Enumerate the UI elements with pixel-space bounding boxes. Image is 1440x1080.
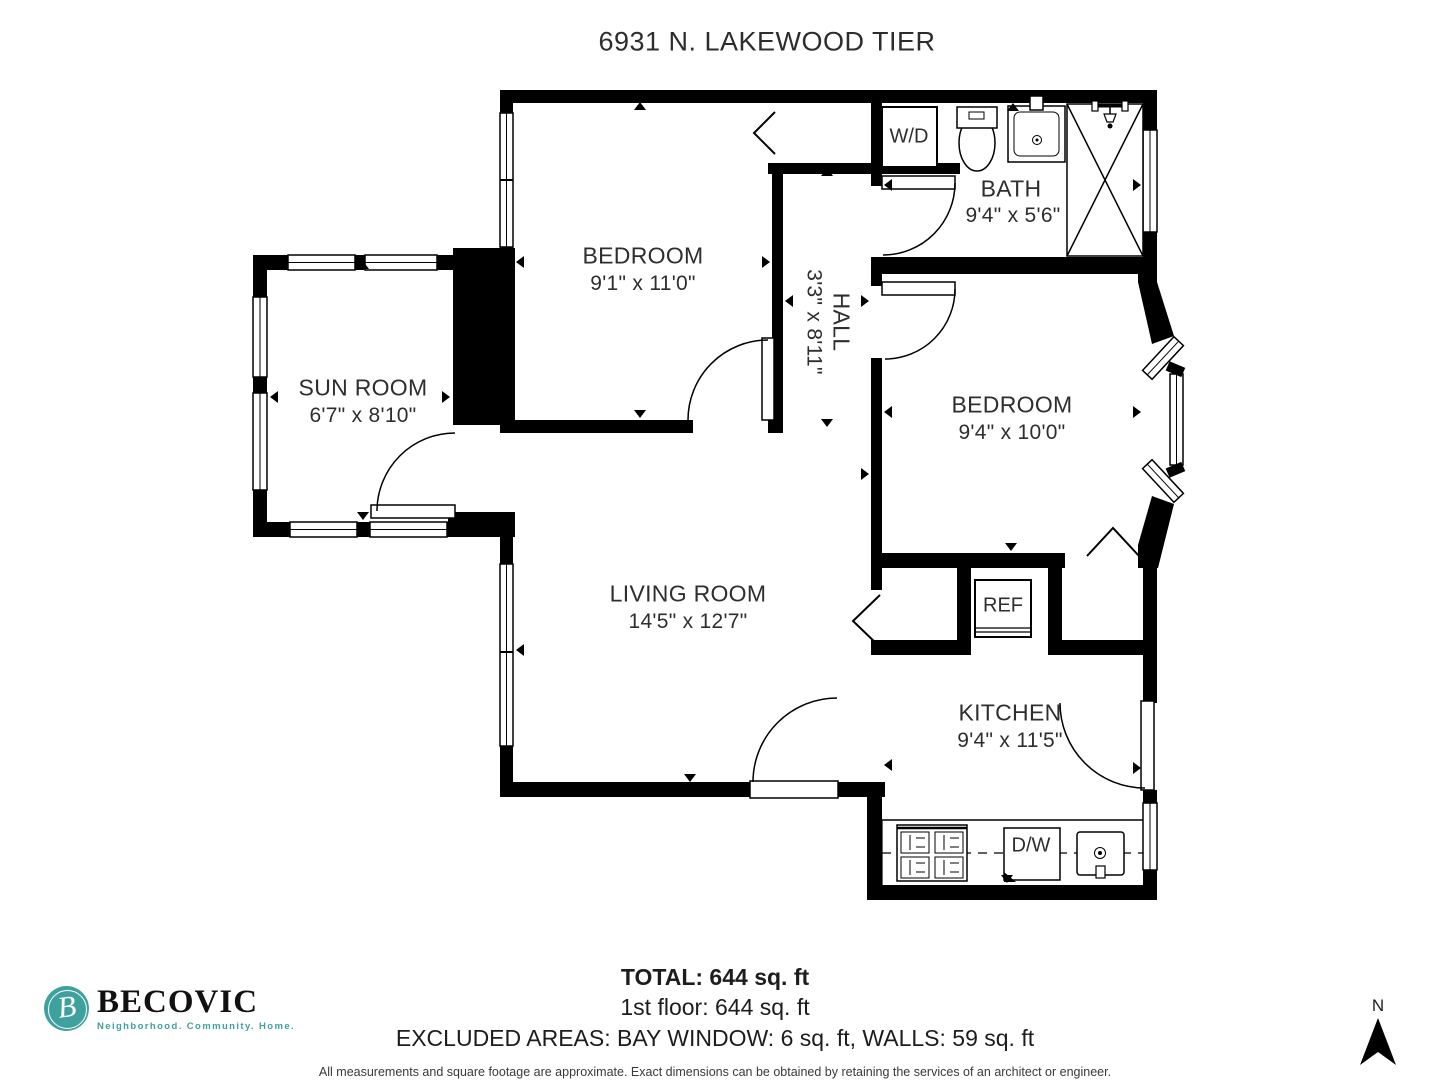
hall-label: HALL 3'3" x 8'11"	[801, 269, 856, 375]
kitchen-dims: 9'4" x 11'5"	[957, 729, 1063, 753]
bath-label: BATH	[981, 176, 1042, 203]
toilet-icon	[957, 107, 997, 171]
logo-tagline: Neighborhood. Community. Home.	[97, 1021, 295, 1032]
door-bedroom1	[688, 338, 774, 420]
wall-top	[500, 90, 1157, 103]
floor-plan-page: 6931 N. LAKEWOOD TIER	[0, 0, 1440, 1080]
kitchen-sink-icon	[1077, 832, 1124, 878]
bedroom2-dims: 9'4" x 10'0"	[958, 421, 1065, 445]
bay-window	[1143, 337, 1186, 503]
logo-wordmark: BECOVIC	[97, 986, 295, 1019]
living-room-label: LIVING ROOM	[610, 581, 767, 608]
floor-plan-drawing	[0, 0, 1440, 960]
logo-monogram: B	[55, 989, 78, 1025]
door-sunroom	[371, 433, 455, 518]
door-bath	[882, 176, 955, 255]
bay-wall-bottom	[1138, 496, 1174, 568]
north-compass: N	[1354, 996, 1402, 1073]
door-front-entry	[750, 698, 838, 798]
disclaimer-text: All measurements and square footage are …	[215, 1065, 1215, 1079]
wall-bedroom1-bottom	[500, 420, 693, 433]
closet-bedroom1-icon	[754, 112, 775, 154]
shower-icon	[1067, 101, 1143, 256]
window-kitchen-right	[1143, 803, 1157, 870]
closet-coat-icon	[853, 595, 880, 647]
living-room-dims: 14'5" x 12'7"	[628, 610, 747, 634]
stove-icon	[897, 825, 967, 881]
bedroom2-label: BEDROOM	[952, 392, 1073, 419]
sunroom-dims: 6'7" x 8'10"	[309, 404, 416, 428]
window-sunroom-left	[253, 297, 267, 490]
bedroom1-dims: 9'1" x 11'0"	[590, 272, 696, 296]
north-arrow-icon	[1354, 1016, 1402, 1068]
wall-hall-right	[871, 358, 882, 590]
refrigerator-label: REF	[983, 595, 1023, 618]
summary-block: TOTAL: 644 sq. ft 1st floor: 644 sq. ft …	[215, 962, 1215, 1079]
window-bedroom1-left	[500, 113, 513, 247]
sunroom-label: SUN ROOM	[299, 375, 428, 402]
bay-wall-top	[1138, 257, 1174, 344]
bedroom1-label: BEDROOM	[583, 243, 704, 270]
becovic-logo-icon: B	[44, 986, 89, 1031]
wall-living-bottom	[500, 782, 752, 797]
door-kitchen-rear	[1060, 701, 1154, 790]
bath-dims: 9'4" x 5'6"	[965, 204, 1060, 228]
north-label: N	[1354, 996, 1402, 1016]
window-living-left	[500, 564, 513, 746]
wall-kitchen-bottom	[867, 885, 1157, 900]
door-bedroom2	[882, 282, 955, 359]
total-area: TOTAL: 644 sq. ft	[215, 962, 1215, 992]
becovic-logo: B BECOVIC Neighborhood. Community. Home.	[44, 986, 295, 1032]
bath-sink-icon	[1008, 96, 1065, 162]
window-bath-right	[1143, 130, 1157, 232]
excluded-areas: EXCLUDED AREAS: BAY WINDOW: 6 sq. ft, WA…	[215, 1023, 1215, 1053]
dishwasher-label: D/W	[1012, 835, 1051, 858]
first-floor-area: 1st floor: 644 sq. ft	[215, 992, 1215, 1022]
closet-bedroom2-icon	[1087, 528, 1139, 556]
kitchen-label: KITCHEN	[958, 700, 1061, 727]
washer-dryer-label: W/D	[890, 126, 929, 149]
